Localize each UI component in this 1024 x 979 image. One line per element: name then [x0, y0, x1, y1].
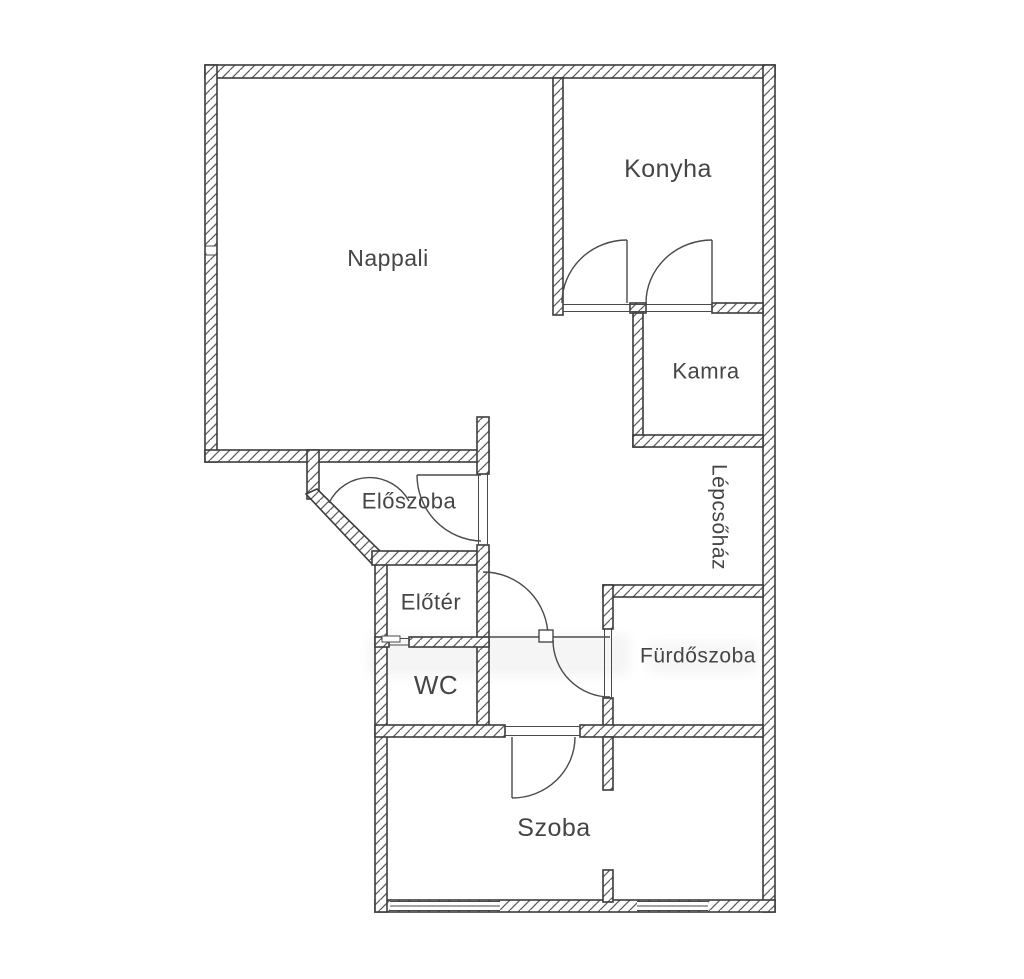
wall-eloter-bottom-right	[409, 637, 489, 647]
wall-top-exterior	[205, 65, 775, 78]
room-label-furdoszoba: Fürdőszoba	[640, 645, 756, 668]
wc-door-leaf-mark	[382, 636, 400, 642]
window-left-wall	[205, 246, 217, 255]
floor-plan-svg: Nappali Konyha Kamra Lépcsőház Előszoba …	[0, 0, 1024, 979]
wall-konyha-bottom-right	[712, 303, 763, 313]
room-label-szoba: Szoba	[517, 814, 590, 842]
wall-right-exterior	[763, 65, 775, 912]
room-label-eloszoba: Előszoba	[362, 489, 457, 514]
wall-left-exterior	[205, 65, 217, 462]
wall-kamra-left	[633, 313, 643, 447]
wall-corridor-upper	[477, 417, 489, 474]
room-label-wc: WC	[414, 670, 458, 700]
room-label-lepcsohaz: Lépcsőház	[708, 464, 731, 570]
window-bottom-right	[637, 902, 708, 911]
wall-furdo-left-upper	[603, 585, 613, 629]
room-label-konyha: Konyha	[624, 155, 712, 183]
wall-konyha-left	[553, 78, 563, 315]
room-label-nappali: Nappali	[347, 245, 429, 271]
wall-nappali-bottom	[205, 450, 489, 462]
wall-eloszoba-bottom	[372, 551, 489, 565]
wall-kamra-bottom	[633, 435, 763, 447]
wall-stairs-bottom	[603, 585, 763, 597]
wall-szoba-top-left	[375, 725, 505, 737]
window-bottom-left	[390, 902, 500, 911]
room-label-eloter: Előtér	[401, 590, 461, 615]
floor-plan: Nappali Konyha Kamra Lépcsőház Előszoba …	[0, 0, 1024, 979]
door-endblock-hall	[539, 630, 553, 642]
wall-szoba-stub-lower	[603, 870, 613, 902]
wall-szoba-stub-upper	[603, 737, 613, 790]
room-label-kamra: Kamra	[672, 359, 740, 384]
wall-szoba-top-right	[580, 725, 763, 737]
plan-background	[0, 0, 1024, 979]
